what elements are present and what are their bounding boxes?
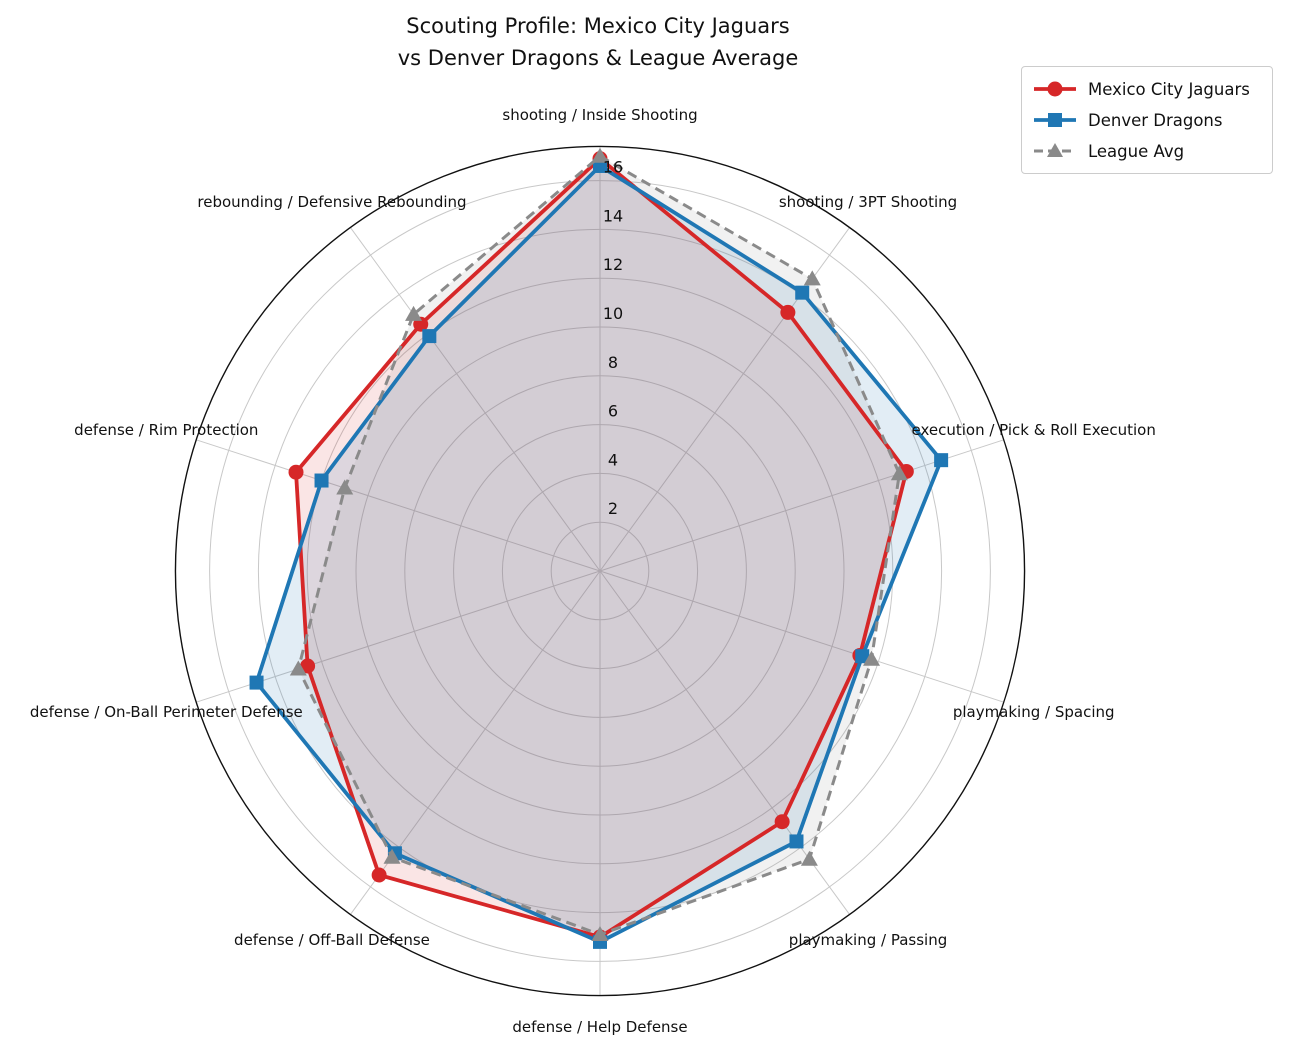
legend-item-mexico-city-jaguars: Mexico City Jaguars [1032,77,1260,101]
chart-title-line2: vs Denver Dragons & League Average [398,42,799,74]
radial-tick-label: 10 [603,304,623,323]
legend-label: Denver Dragons [1088,111,1222,130]
data-point-circle [775,814,790,829]
category-label: defense / Help Defense [512,1018,687,1036]
category-label: playmaking / Passing [789,931,947,949]
radial-tick-label: 16 [603,158,623,177]
category-label: shooting / 3PT Shooting [779,193,957,211]
radial-tick-label: 2 [608,499,618,518]
chart-title-line1: Scouting Profile: Mexico City Jaguars [398,10,799,42]
category-label: rebounding / Defensive Rebounding [197,193,466,211]
radial-tick-label: 14 [603,206,623,225]
radar-chart-figure: 246810121416shooting / Inside Shootingsh… [0,0,1289,1052]
data-point-circle [780,305,795,320]
legend-label: Mexico City Jaguars [1088,80,1250,99]
data-point-square [422,329,436,343]
chart-title: Scouting Profile: Mexico City Jaguars vs… [398,10,799,74]
category-label: shooting / Inside Shooting [502,106,697,124]
legend-blue-square-marker-icon [1032,111,1078,129]
category-label: execution / Pick & Roll Execution [911,421,1155,439]
data-point-square [315,474,329,488]
radial-tick-label: 12 [603,255,623,274]
series-fill-league-avg [298,156,899,934]
legend-red-circle-marker-icon [1032,80,1078,98]
category-label: playmaking / Spacing [953,703,1115,721]
data-point-square [789,834,803,848]
radial-tick-label: 8 [608,353,618,372]
legend-item-denver-dragons: Denver Dragons [1032,108,1260,132]
legend-label: League Avg [1088,142,1184,161]
category-label: defense / Off-Ball Defense [234,931,430,949]
legend-gray-triangle-marker-icon [1032,142,1078,160]
data-point-circle [372,867,387,882]
data-point-square [795,286,809,300]
data-point-circle [289,465,304,480]
legend: Mexico City Jaguars Denver Dragons Leagu… [1021,66,1273,174]
radial-tick-label: 6 [608,402,618,421]
category-label: defense / On-Ball Perimeter Defense [30,703,303,721]
radial-tick-label: 4 [608,450,618,469]
legend-item-league-avg: League Avg [1032,139,1260,163]
category-label: defense / Rim Protection [74,421,258,439]
data-point-square [934,453,948,467]
data-point-square [250,676,264,690]
